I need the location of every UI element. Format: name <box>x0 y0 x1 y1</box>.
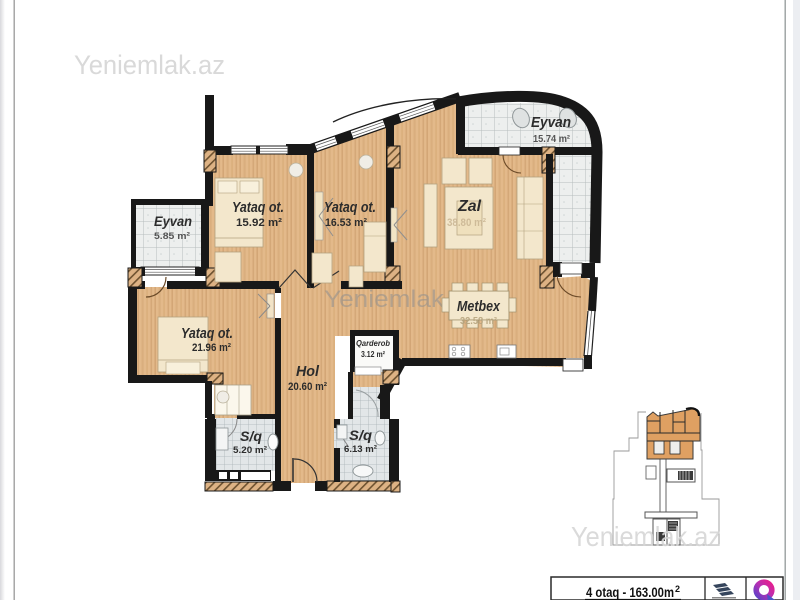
svg-text:Yeniemlak.az: Yeniemlak.az <box>571 521 721 552</box>
svg-text:Zal: Zal <box>457 198 482 215</box>
svg-text:15.74 m²: 15.74 m² <box>533 134 571 145</box>
svg-text:15.92 m²: 15.92 m² <box>236 217 282 229</box>
svg-text:S/q: S/q <box>349 427 372 443</box>
svg-text:32.58 m²: 32.58 m² <box>460 316 498 327</box>
svg-text:Yataq ot.: Yataq ot. <box>181 325 233 342</box>
svg-text:Metbex: Metbex <box>457 298 501 315</box>
svg-text:Yataq ot.: Yataq ot. <box>232 199 284 216</box>
svg-text:2: 2 <box>675 584 680 594</box>
svg-text:Yataq ot.: Yataq ot. <box>324 199 376 216</box>
svg-text:20.60 m²: 20.60 m² <box>288 381 327 393</box>
svg-text:S/q: S/q <box>240 428 262 444</box>
svg-text:Hol: Hol <box>296 363 320 380</box>
svg-text:16.53 m²: 16.53 m² <box>325 217 367 229</box>
svg-text:38.80 m²: 38.80 m² <box>447 217 486 229</box>
svg-text:Qarderob: Qarderob <box>356 339 390 348</box>
svg-text:5.20 m²: 5.20 m² <box>233 445 267 456</box>
svg-text:Eyvan: Eyvan <box>154 213 192 229</box>
svg-text:5.85 m²: 5.85 m² <box>154 231 190 242</box>
svg-text:Yeniemlak.az: Yeniemlak.az <box>74 50 225 80</box>
svg-text:6.13 m²: 6.13 m² <box>344 444 377 455</box>
svg-text:4 otaq - 163.00m: 4 otaq - 163.00m <box>586 584 674 600</box>
svg-text:3.12 m²: 3.12 m² <box>361 350 385 359</box>
svg-text:21.96 m²: 21.96 m² <box>192 342 231 354</box>
svg-text:Eyvan: Eyvan <box>531 114 571 131</box>
